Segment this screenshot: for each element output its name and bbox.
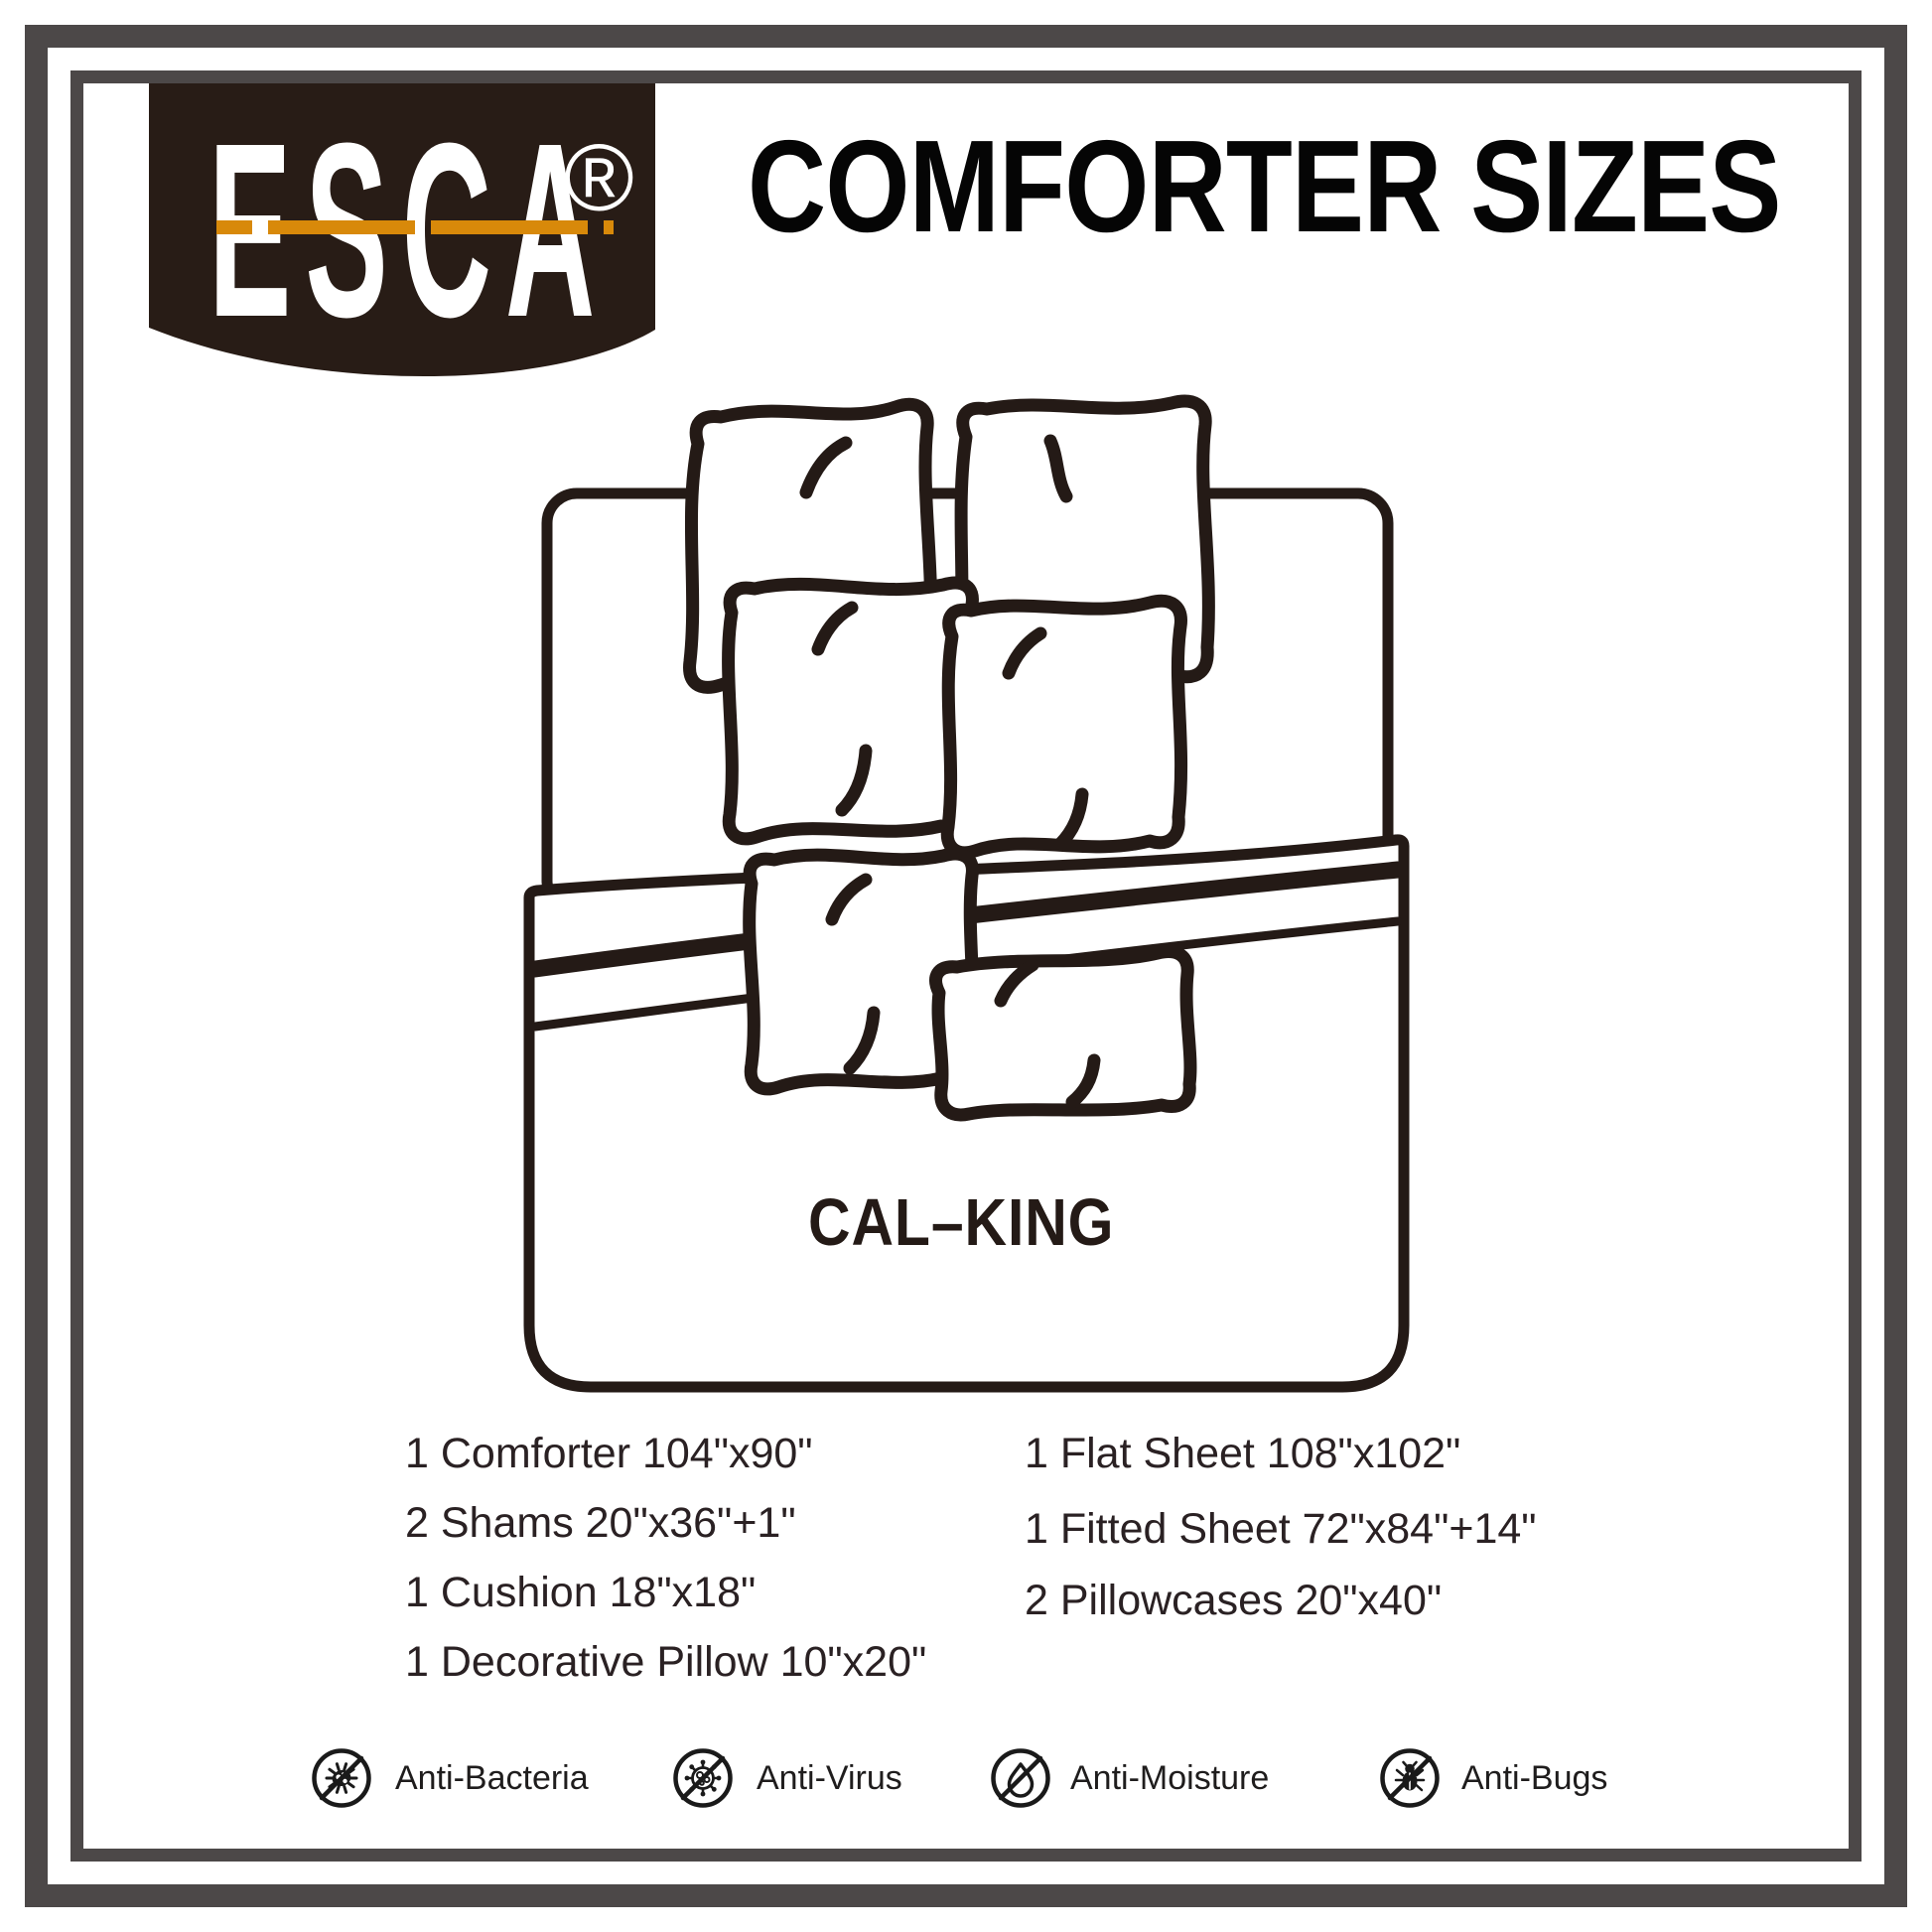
comforter-sizes-infographic: ESCA ® [0,0,1932,1932]
feature-label-anti-virus: Anti-Virus [757,1758,902,1798]
list-item-fitted-sheet: 1 Fitted Sheet 72"x84"+14" [1025,1503,1537,1555]
list-item-shams: 2 Shams 20"x36"+1" [405,1497,796,1549]
anti-bacteria-icon [315,1751,369,1806]
list-item-decorative-pillow: 1 Decorative Pillow 10"x20" [405,1636,926,1688]
list-item-cushion: 1 Cushion 18"x18" [405,1567,756,1618]
feature-label-anti-moisture: Anti-Moisture [1070,1758,1269,1798]
pillow-front-right [947,601,1180,852]
list-item-pillowcases: 2 Pillowcases 20"x40" [1025,1575,1442,1626]
brand-badge: ESCA ® [149,83,655,376]
page-title: COMFORTER SIZES [748,127,1781,246]
anti-moisture-icon [994,1751,1048,1806]
list-item-comforter: 1 Comforter 104"x90" [405,1428,813,1479]
artwork-layer: ESCA ® [0,0,1932,1932]
list-item-flat-sheet: 1 Flat Sheet 108"x102" [1025,1428,1460,1479]
anti-virus-icon [676,1751,731,1806]
bed-size-label: CAL–KING [808,1187,1114,1259]
feature-label-anti-bugs: Anti-Bugs [1461,1758,1607,1798]
registered-mark: ® [564,125,634,231]
anti-bugs-icon [1383,1751,1438,1806]
decorative-pillow-on-comforter [936,952,1190,1115]
pillow-front-left [729,583,973,839]
feature-label-anti-bacteria: Anti-Bacteria [395,1758,589,1798]
